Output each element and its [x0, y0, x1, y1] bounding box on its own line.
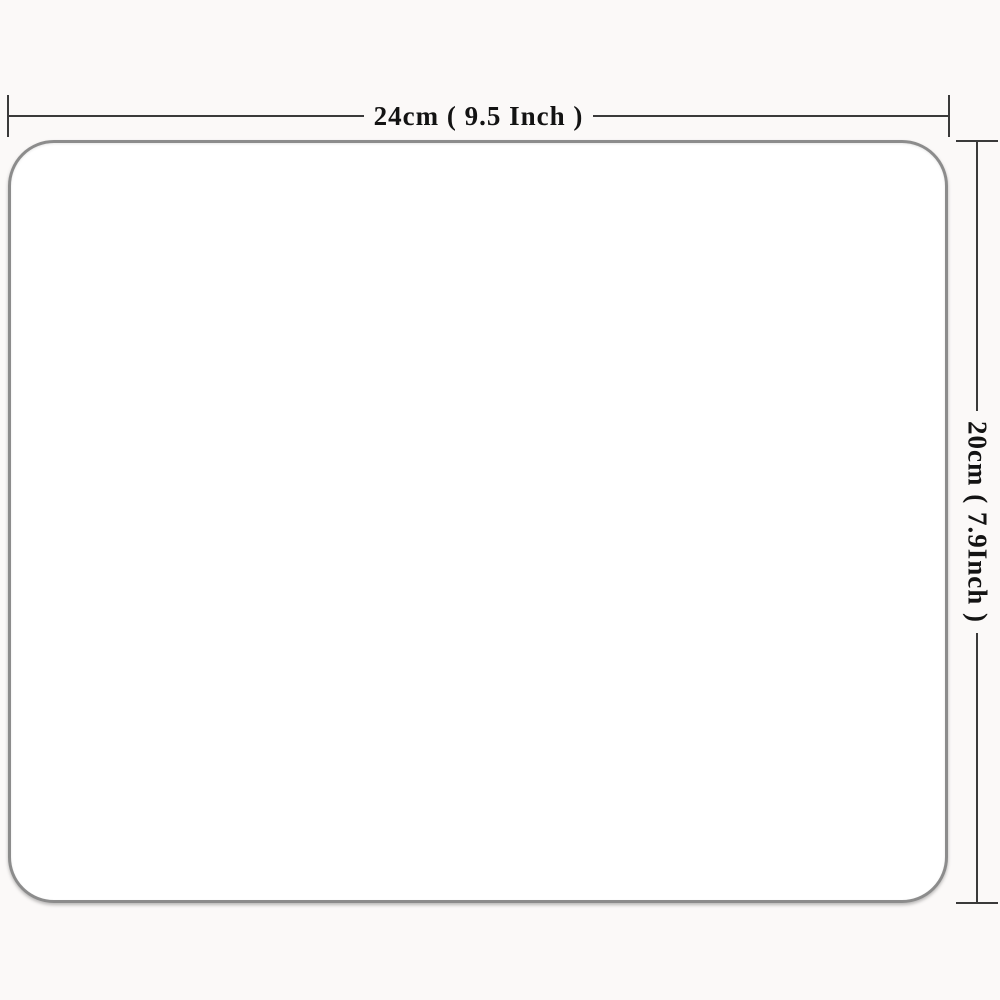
product-dimension-diagram: 24cm ( 9.5 Inch ) 20cm ( 7.9Inch ) — [0, 0, 1000, 1000]
board-surface — [8, 140, 948, 903]
width-dimension-line-left — [9, 115, 364, 117]
height-dimension-label: 20cm ( 7.9Inch ) — [964, 411, 991, 633]
height-dimension-line-bottom — [976, 633, 978, 902]
height-dimension: 20cm ( 7.9Inch ) — [956, 140, 998, 904]
width-dimension-right-tick — [948, 95, 950, 137]
width-dimension: 24cm ( 9.5 Inch ) — [7, 95, 950, 137]
width-dimension-label: 24cm ( 9.5 Inch ) — [364, 103, 594, 130]
height-dimension-line-top — [976, 142, 978, 411]
height-dimension-bottom-tick — [956, 902, 998, 904]
width-dimension-line-right — [593, 115, 948, 117]
